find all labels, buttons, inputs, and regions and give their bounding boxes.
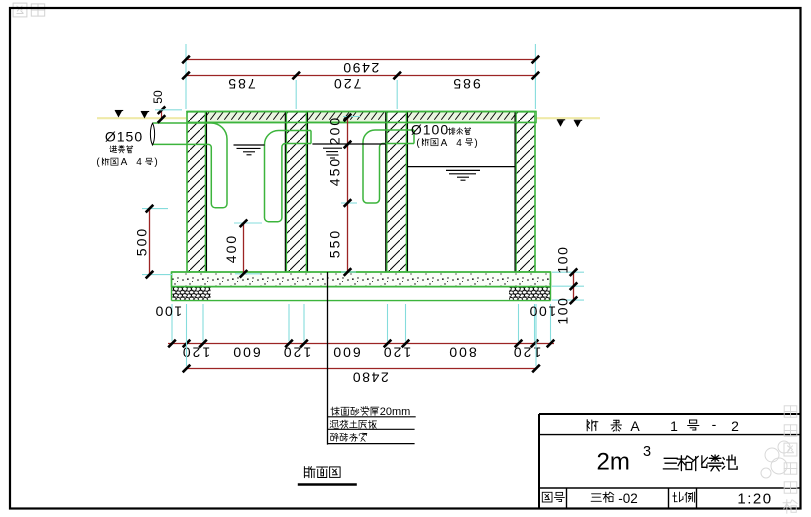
svg-text:985: 985 — [451, 76, 480, 92]
svg-text:100: 100 — [555, 245, 571, 273]
svg-text:120: 120 — [382, 345, 411, 361]
svg-text:600: 600 — [331, 345, 360, 361]
svg-text:50: 50 — [151, 90, 165, 104]
svg-text:400: 400 — [223, 234, 239, 263]
svg-text:785: 785 — [226, 76, 255, 92]
svg-text:450: 450 — [327, 157, 343, 186]
svg-text:Ø100: Ø100 — [411, 122, 449, 138]
svg-text:120: 120 — [282, 345, 311, 361]
svg-text:120: 120 — [181, 345, 210, 361]
svg-text:4: 4 — [136, 157, 142, 168]
svg-text:A: A — [630, 418, 640, 434]
svg-text:2: 2 — [731, 418, 739, 434]
svg-text:-02: -02 — [618, 491, 638, 506]
svg-text:600: 600 — [231, 345, 260, 361]
svg-text:120: 120 — [512, 345, 541, 361]
svg-text:100: 100 — [154, 304, 182, 320]
svg-text:100: 100 — [528, 304, 556, 320]
svg-text:1:20: 1:20 — [737, 491, 772, 508]
svg-text:800: 800 — [447, 345, 476, 361]
svg-text:3: 3 — [643, 444, 651, 460]
svg-text:2490: 2490 — [342, 60, 380, 76]
svg-text:A: A — [441, 138, 448, 149]
svg-text:A: A — [121, 157, 128, 168]
svg-text:Ø150: Ø150 — [105, 129, 143, 145]
svg-text:550: 550 — [327, 229, 343, 258]
svg-text:20mm: 20mm — [380, 406, 411, 418]
svg-text:2m: 2m — [597, 449, 630, 476]
svg-text:4: 4 — [456, 138, 462, 149]
svg-text:720: 720 — [332, 76, 361, 92]
svg-text:200: 200 — [327, 116, 343, 145]
svg-text:): ) — [474, 138, 477, 149]
svg-text:): ) — [154, 157, 157, 168]
svg-text:2480: 2480 — [351, 370, 389, 386]
svg-text:-: - — [712, 416, 717, 432]
svg-text:1: 1 — [670, 418, 678, 434]
svg-text:500: 500 — [134, 227, 150, 256]
